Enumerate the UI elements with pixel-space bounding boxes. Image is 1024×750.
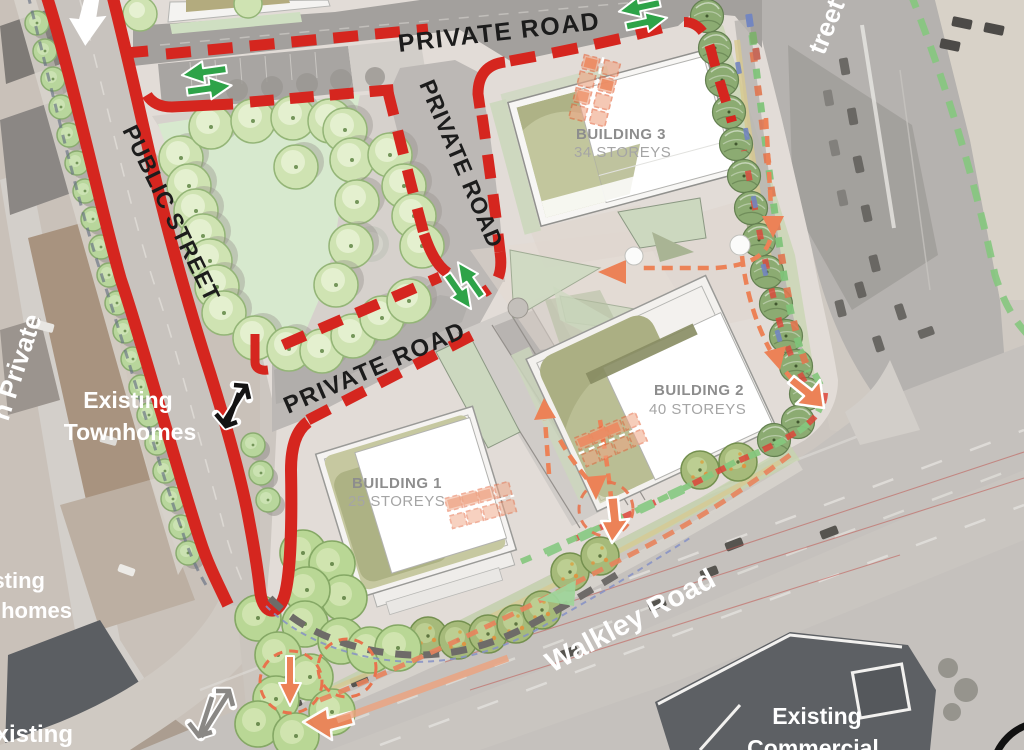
svg-text:34 STOREYS: 34 STOREYS [574, 144, 671, 161]
svg-text:BUILDING 2: BUILDING 2 [654, 382, 744, 399]
svg-text:BUILDING 3: BUILDING 3 [576, 126, 666, 143]
svg-text:Townhomes: Townhomes [64, 419, 196, 445]
svg-text:homes: homes [1, 598, 72, 623]
svg-text:BUILDING 1: BUILDING 1 [352, 475, 442, 492]
svg-text:sting: sting [0, 568, 45, 593]
svg-text:Existing: Existing [83, 387, 172, 413]
svg-text:Existing: Existing [772, 703, 861, 729]
svg-text:40 STOREYS: 40 STOREYS [649, 401, 746, 418]
svg-text:xisting: xisting [0, 721, 73, 748]
svg-text:Commercial: Commercial [747, 735, 879, 750]
svg-text:25 STOREYS: 25 STOREYS [348, 493, 445, 510]
